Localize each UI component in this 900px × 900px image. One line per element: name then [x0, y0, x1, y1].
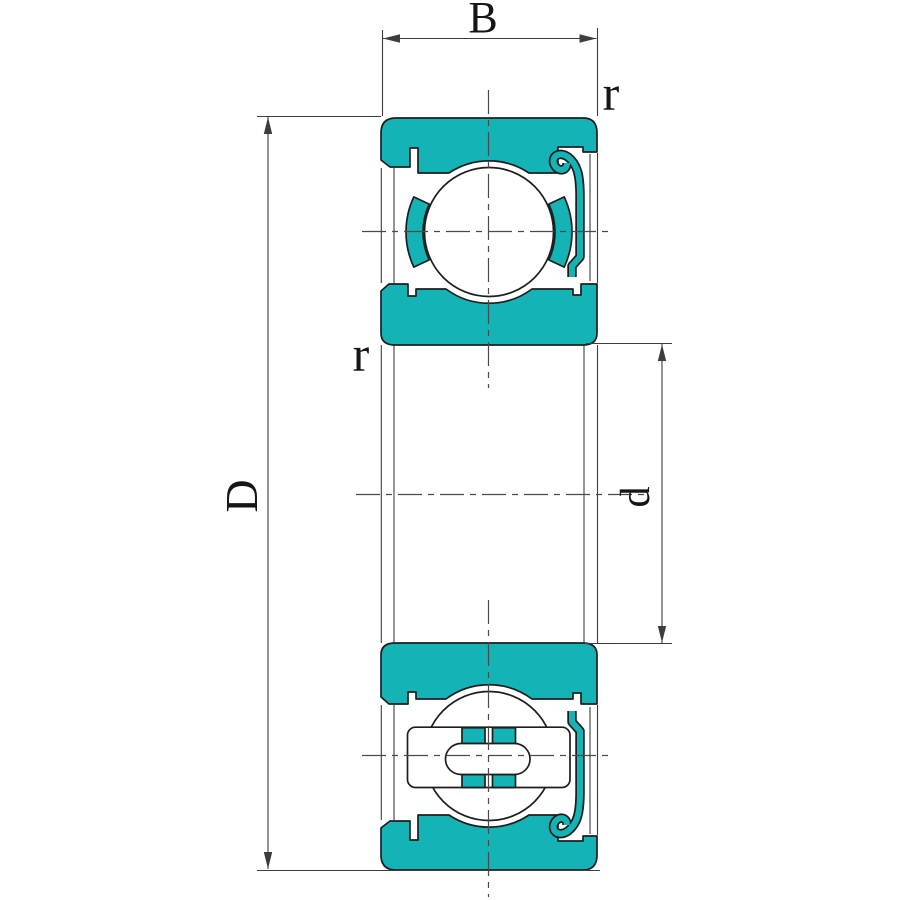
arrowhead-left	[383, 34, 400, 42]
cage-rivet-block	[493, 775, 516, 788]
bearing-section-bottom	[381, 643, 598, 870]
arrowhead-down	[264, 852, 272, 869]
label-bore-diameter-d: d	[613, 487, 659, 508]
arrowhead-up	[658, 345, 666, 362]
label-outer-diameter-D: D	[216, 479, 267, 512]
label-corner-radius-outer: r	[603, 65, 620, 121]
bearing-drawing-canvas: B D d r r	[0, 0, 900, 900]
arrowhead-right	[580, 34, 597, 42]
bearing-cross-section-diagram: B D d r r	[0, 0, 900, 900]
cage-rivet-capsule	[446, 744, 531, 775]
label-corner-radius-bore: r	[353, 326, 370, 382]
cage-rivet-block	[462, 775, 485, 788]
arrowhead-up	[264, 117, 272, 134]
label-width-B: B	[468, 0, 497, 42]
arrowhead-down	[658, 626, 666, 643]
cage-rivet-block	[462, 728, 485, 744]
cage-rivet-block	[493, 728, 516, 744]
